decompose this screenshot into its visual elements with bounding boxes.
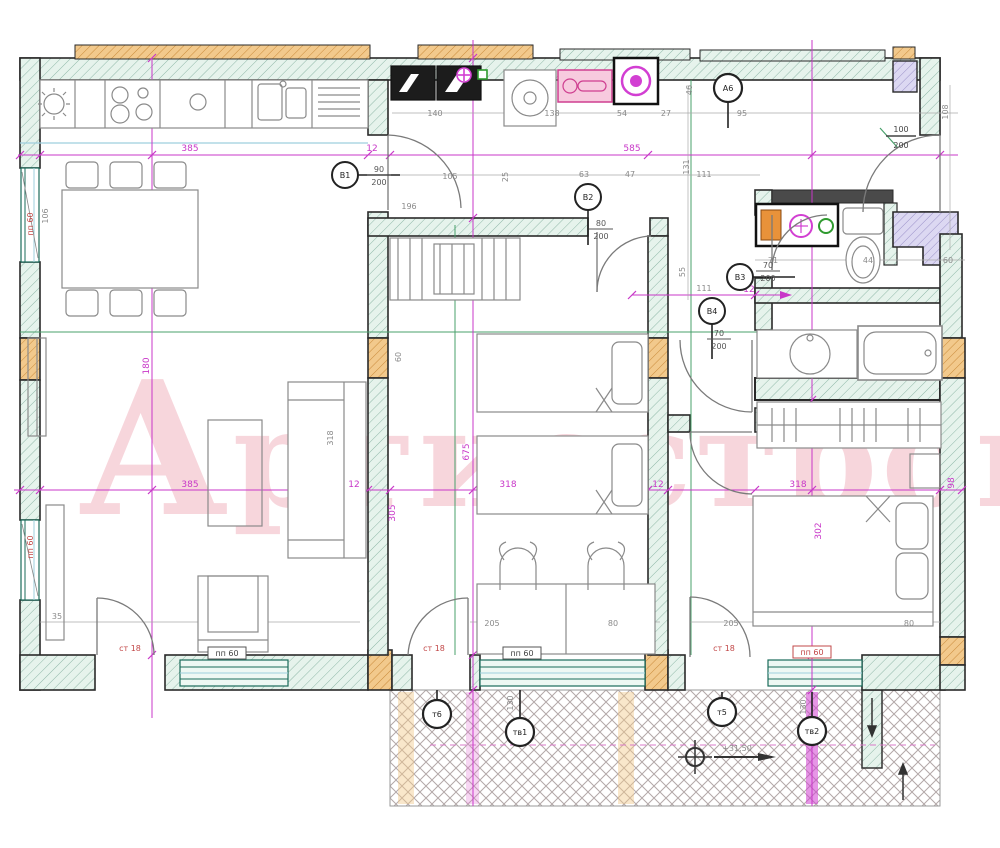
armchair <box>198 576 268 652</box>
window-kids <box>480 660 645 686</box>
desk-chair-1 <box>499 542 536 590</box>
toilet <box>843 208 883 283</box>
floor-plan-canvas: Артисстрой +31,50 <box>0 0 1000 848</box>
entrance-size-numerator: 100 <box>893 125 908 134</box>
window-left-2 <box>21 520 39 600</box>
floor-plan-drawing: Артисстрой +31,50 <box>0 0 1000 848</box>
kids-bed-1 <box>477 334 648 412</box>
dimension-label: 318 <box>499 480 516 490</box>
dimension-label: пп 60 <box>215 649 238 658</box>
dimension-label: 12 <box>652 480 663 490</box>
kids-bed-2 <box>477 436 648 514</box>
door-marker-label: В1 <box>340 171 351 180</box>
dimension-label: ст 18 <box>119 644 141 653</box>
dimension-label: 105 <box>442 172 457 181</box>
dimension-label: 80 <box>608 619 618 628</box>
dimension-label: 108 <box>941 104 950 119</box>
dimension-label: пп 60 <box>800 648 823 657</box>
axis-bubble-label: тв1 <box>513 728 527 737</box>
dimension-label: 60 <box>943 256 953 265</box>
boiler <box>558 70 612 102</box>
dimension-label: 385 <box>181 144 198 154</box>
double-bed <box>753 496 933 626</box>
dimension-label: 47 <box>625 170 635 179</box>
dimension-label: 305 <box>388 504 398 521</box>
dimension-label: 46 <box>685 85 694 95</box>
dimension-label: ст 18 <box>713 644 735 653</box>
desk-chair-2 <box>587 542 624 590</box>
axis-bubble-label: тв2 <box>805 727 819 736</box>
dimension-label: 318 <box>789 480 806 490</box>
door-marker: В190200 <box>332 162 400 188</box>
dimension-label: 138 <box>544 109 559 118</box>
door-size-denominator: 200 <box>371 178 386 187</box>
sofa <box>288 382 366 558</box>
dimension-label: 675 <box>462 443 472 460</box>
door-size-denominator: 200 <box>760 274 775 283</box>
dimension-label: 111 <box>696 284 711 293</box>
axis-bubble-label: А6 <box>723 84 734 93</box>
dimension-label: 131 <box>682 159 691 174</box>
dimension-label: 130 <box>506 695 515 710</box>
wc-vanity <box>756 204 838 246</box>
dimension-label: 80 <box>904 619 914 628</box>
dimension-label: 60 <box>394 352 403 362</box>
kitchen-counter <box>38 80 368 128</box>
dimension-label: 318 <box>326 430 335 445</box>
door-size-denominator: 200 <box>593 232 608 241</box>
dimension-label: 205 <box>723 619 738 628</box>
axis-bubble: А6 <box>714 74 742 128</box>
dimension-label: 12 <box>348 480 359 490</box>
window-living <box>180 660 288 686</box>
door-marker-label: В4 <box>707 307 718 316</box>
door-size-numerator: 70 <box>714 329 724 338</box>
dimension-label: 27 <box>661 109 671 118</box>
dimension-label: 111 <box>696 170 711 179</box>
door-marker-label: В3 <box>735 273 746 282</box>
dimension-label: пп 60 <box>26 212 35 235</box>
dimension-label: ст 18 <box>423 644 445 653</box>
dimension-label: 302 <box>814 522 824 539</box>
door-size-denominator: 200 <box>711 342 726 351</box>
entrance-size-denominator: 200 <box>893 141 908 150</box>
axis-bubble-label: т5 <box>717 708 727 717</box>
dimension-label: 98 <box>947 477 957 489</box>
elevation-label: +31,50 <box>722 744 752 753</box>
door-size-numerator: 90 <box>374 165 384 174</box>
dimension-label: 585 <box>623 144 640 154</box>
dimension-label: 35 <box>52 612 62 621</box>
dimension-label: 63 <box>579 170 589 179</box>
dimension-label: 140 <box>427 109 442 118</box>
dimension-label: пп 60 <box>26 535 35 558</box>
dimension-label: 196 <box>401 202 416 211</box>
dimension-label: 12 <box>366 144 377 154</box>
fan-unit <box>614 58 658 104</box>
dimension-label: 180 <box>142 357 152 374</box>
dining-table <box>62 162 198 316</box>
kids-desk <box>477 584 655 654</box>
dimension-label: 95 <box>737 109 747 118</box>
door-marker-label: В2 <box>583 193 594 202</box>
dimension-label: 130 <box>799 699 808 714</box>
entrance-door-label: 100200 <box>886 125 916 150</box>
dimension-label: 385 <box>181 480 198 490</box>
dimension-label: пп 60 <box>510 649 533 658</box>
dimension-label: 54 <box>617 109 627 118</box>
kids-closet <box>390 238 520 300</box>
window-bedroom <box>768 660 862 686</box>
door-size-numerator: 70 <box>763 261 773 270</box>
dimension-label: 205 <box>484 619 499 628</box>
dimension-label: 25 <box>501 172 510 182</box>
door-kids <box>597 232 651 292</box>
door-size-numerator: 80 <box>596 219 606 228</box>
dimension-label: 55 <box>678 267 687 277</box>
wardrobe <box>757 402 941 448</box>
axis-bubble-label: т6 <box>432 710 442 719</box>
dimension-label: 106 <box>41 208 50 223</box>
dimension-label: 44 <box>863 256 873 265</box>
door-marker: В470200 <box>699 298 731 359</box>
bath-sink <box>757 330 857 378</box>
bathtub <box>858 326 942 380</box>
